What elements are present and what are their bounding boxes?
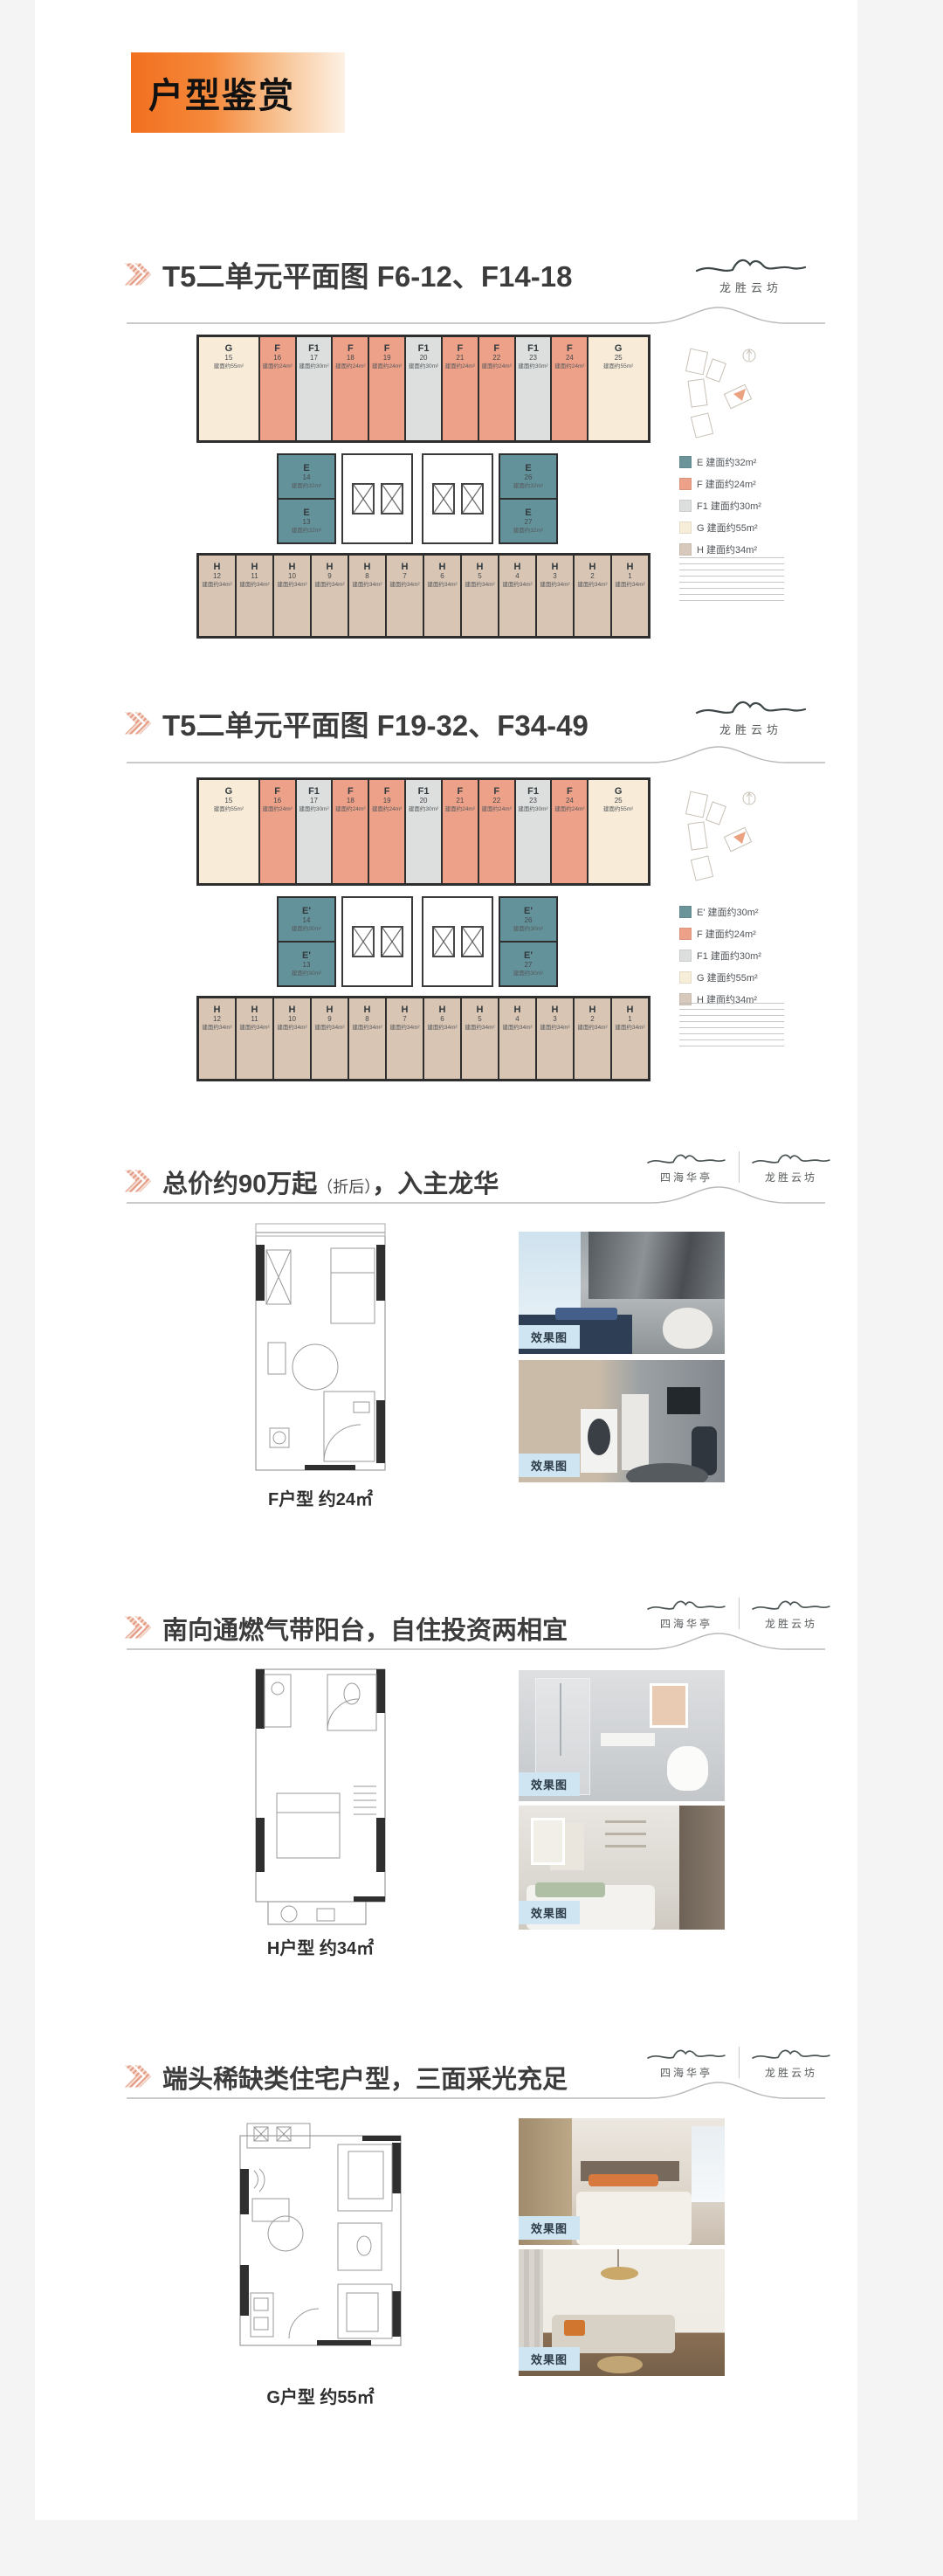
unit-cell: H 12 建面约34m² bbox=[199, 556, 235, 636]
unit-type: E' bbox=[524, 906, 533, 916]
brand-logo-label: 龙胜云坊 bbox=[719, 721, 782, 737]
unit-type: F1 bbox=[418, 343, 430, 354]
legend-color-swatch bbox=[679, 971, 692, 984]
unit-area: 建面约30m² bbox=[513, 970, 543, 977]
unit-cell: F 19 建面约24m² bbox=[369, 780, 404, 883]
unit-number: 20 bbox=[420, 354, 428, 363]
unit-area: 建面约32m² bbox=[513, 482, 543, 490]
disclaimer-text bbox=[679, 1003, 784, 1050]
legend-color-swatch bbox=[679, 543, 692, 556]
pillows-green bbox=[535, 1882, 605, 1897]
unit-cell: H 4 建面约34m² bbox=[499, 556, 535, 636]
unit-type: F1 bbox=[308, 786, 320, 797]
unit-cell: H 1 建面约34m² bbox=[612, 998, 648, 1079]
unit-number: 16 bbox=[273, 354, 281, 363]
unit-type: F bbox=[567, 343, 573, 354]
unit-cell: F 21 建面约24m² bbox=[443, 337, 478, 440]
unit-area: 建面约24m² bbox=[554, 363, 584, 370]
legend-label: F1 建面约30m² bbox=[697, 499, 761, 513]
unit-cell: H 10 建面约34m² bbox=[274, 556, 310, 636]
unit-type: E' bbox=[302, 906, 311, 916]
unit-area: 建面约30m² bbox=[299, 363, 328, 370]
unit-area: 建面约34m² bbox=[202, 581, 231, 589]
unit-cell: H 11 建面约34m² bbox=[237, 556, 272, 636]
unit-number: 20 bbox=[420, 797, 428, 805]
unit-area: 建面约34m² bbox=[540, 1024, 569, 1032]
mountain-wave-icon bbox=[646, 1150, 726, 1167]
legend-row: G 建面约55m² bbox=[679, 521, 810, 535]
legend-color-swatch bbox=[679, 928, 692, 940]
unit-cell: F 21 建面约24m² bbox=[443, 780, 478, 883]
unit-area: 建面约30m² bbox=[292, 970, 321, 977]
washer-door bbox=[588, 1419, 610, 1455]
unit-number: 24 bbox=[566, 797, 574, 805]
unit-type: F1 bbox=[418, 786, 430, 797]
unit-type: F bbox=[493, 343, 499, 354]
unit-cell: F 18 建面约24m² bbox=[333, 337, 368, 440]
floorplan2-core-row: E' 14 建面约30m² E' 13 建面约30m² E bbox=[196, 896, 650, 987]
unit-cell: H 8 建面约34m² bbox=[349, 998, 385, 1079]
unit-number: 19 bbox=[383, 354, 391, 363]
dual-brand-logos: 四海华亭 龙胜云坊 bbox=[646, 2045, 831, 2080]
unit-number: 23 bbox=[529, 797, 537, 805]
vanity-counter bbox=[601, 1733, 654, 1746]
h-unit-floorplan-drawing bbox=[251, 1664, 390, 1929]
legend-label: F 建面约24m² bbox=[697, 477, 756, 491]
unit-cell: F 16 建面约24m² bbox=[260, 780, 295, 883]
brand-logo-label: 龙胜云坊 bbox=[765, 1170, 817, 1184]
unit-type: E bbox=[303, 463, 309, 473]
unit-type: H bbox=[552, 1005, 559, 1015]
unit-type: G bbox=[225, 786, 233, 797]
orange-pillows bbox=[589, 2174, 658, 2187]
brand-logo-label: 龙胜云坊 bbox=[765, 2065, 817, 2080]
bed-duvet bbox=[576, 2192, 692, 2245]
section-divider bbox=[127, 304, 825, 327]
unit-type: H bbox=[627, 1005, 634, 1015]
floorplan1-core-row: E 14 建面约32m² E 13 建面约32m² E bbox=[196, 453, 650, 544]
unit-type: F bbox=[348, 343, 354, 354]
floorplan1-legend: E 建面约32m² F 建面约24m² F1 建面约30m² G 建面约55m²… bbox=[679, 455, 810, 556]
unit-cell: E' 13 建面约30m² bbox=[279, 943, 334, 985]
unit-cell: E' 26 建面约30m² bbox=[500, 898, 556, 941]
legend-color-swatch bbox=[679, 500, 692, 512]
unit-number: 23 bbox=[529, 354, 537, 363]
curtain bbox=[519, 2249, 543, 2348]
unit-area: 建面约30m² bbox=[518, 805, 547, 813]
unit-area: 建面约32m² bbox=[292, 482, 321, 490]
unit-number: 3 bbox=[553, 572, 556, 581]
coffee-table bbox=[597, 2356, 643, 2373]
logo-separator bbox=[739, 1598, 740, 1629]
unit-type: F bbox=[493, 786, 499, 797]
unit-type: F bbox=[384, 343, 390, 354]
brand-logo: 龙胜云坊 bbox=[677, 695, 825, 737]
unit-type: H bbox=[402, 1005, 409, 1015]
unit-type: H bbox=[364, 1005, 371, 1015]
unit-number: 21 bbox=[456, 797, 464, 805]
unit-area: 建面约34m² bbox=[389, 581, 419, 589]
unit-cell: H 6 建面约34m² bbox=[424, 556, 460, 636]
unit-area: 建面约24m² bbox=[372, 805, 402, 813]
brand-logo-label: 龙胜云坊 bbox=[765, 1616, 817, 1631]
unit-cell: H 5 建面约34m² bbox=[462, 998, 498, 1079]
section-divider bbox=[127, 2079, 825, 2102]
unit-type: F bbox=[567, 786, 573, 797]
section-chevron-icon bbox=[124, 262, 152, 287]
unit-cell: E 27 建面约32m² bbox=[500, 500, 556, 542]
section2-title: T5二单元平面图 F19-32、F34-49 bbox=[162, 702, 589, 744]
unit-number: 5 bbox=[478, 572, 481, 581]
brand-logo: 四海华亭 bbox=[646, 1150, 726, 1184]
f-unit-caption: F户型 约24㎡ bbox=[251, 1485, 390, 1510]
legend-color-swatch bbox=[679, 521, 692, 534]
unit-type: H bbox=[477, 1005, 484, 1015]
unit-number: 11 bbox=[251, 572, 258, 581]
unit-number: 7 bbox=[403, 572, 406, 581]
unit-number: 2 bbox=[590, 1015, 594, 1024]
legend-row: H 建面约34m² bbox=[679, 542, 810, 556]
unit-cell: H 6 建面约34m² bbox=[424, 998, 460, 1079]
unit-cell: H 10 建面约34m² bbox=[274, 998, 310, 1079]
unit-cell: G 15 建面约55m² bbox=[199, 337, 258, 440]
lamp-shade bbox=[601, 2267, 637, 2280]
unit-number: 19 bbox=[383, 797, 391, 805]
unit-type: H bbox=[251, 1005, 258, 1015]
unit-cell: H 9 建面约34m² bbox=[312, 998, 348, 1079]
unit-area: 建面约24m² bbox=[335, 805, 365, 813]
mountain-wave-icon bbox=[751, 1596, 831, 1613]
brand-logo: 四海华亭 bbox=[646, 2045, 726, 2080]
unit-number: 9 bbox=[327, 572, 331, 581]
unit-number: 2 bbox=[590, 572, 594, 581]
unit-type: G bbox=[615, 786, 623, 797]
unit-area: 建面约30m² bbox=[299, 805, 328, 813]
unit-area: 建面约34m² bbox=[202, 1024, 231, 1032]
unit-cell: F1 20 建面约30m² bbox=[406, 337, 441, 440]
logo-separator bbox=[739, 2047, 740, 2078]
unit-cell: H 5 建面约34m² bbox=[462, 556, 498, 636]
unit-number: 9 bbox=[327, 1015, 331, 1024]
unit-area: 建面约34m² bbox=[277, 1024, 306, 1032]
unit-area: 建面约32m² bbox=[513, 527, 543, 535]
unit-cell: H 11 建面约34m² bbox=[237, 998, 272, 1079]
unit-number: 10 bbox=[288, 572, 296, 581]
unit-type: F1 bbox=[527, 786, 539, 797]
legend-row: E 建面约32m² bbox=[679, 455, 810, 469]
photo-rendering-bathroom: 效果图 bbox=[519, 1670, 725, 1801]
site-plan-diagram bbox=[681, 343, 761, 441]
unit-cell: H 1 建面约34m² bbox=[612, 556, 648, 636]
disclaimer-text bbox=[679, 557, 784, 604]
unit-area: 建面约34m² bbox=[314, 1024, 344, 1032]
unit-number: 3 bbox=[553, 1015, 556, 1024]
brand-logo-label: 四海华亭 bbox=[660, 1616, 712, 1631]
unit-area: 建面约34m² bbox=[239, 1024, 269, 1032]
section-divider bbox=[127, 743, 825, 766]
unit-area: 建面约34m² bbox=[615, 1024, 644, 1032]
unit-cell: E' 27 建面约30m² bbox=[500, 943, 556, 985]
photo-rendering-bedroom-green: 效果图 bbox=[519, 1806, 725, 1930]
section-chevron-icon bbox=[124, 711, 152, 736]
art-frames bbox=[531, 1818, 565, 1865]
unit-type: E' bbox=[524, 950, 533, 961]
unit-number: 4 bbox=[515, 1015, 519, 1024]
legend-color-swatch bbox=[679, 478, 692, 490]
unit-cell: F 24 建面约24m² bbox=[552, 780, 587, 883]
unit-area: 建面约34m² bbox=[352, 1024, 382, 1032]
unit-cell: G 25 建面约55m² bbox=[589, 337, 648, 440]
unit-area: 建面约30m² bbox=[292, 925, 321, 933]
legend-row: F 建面约24m² bbox=[679, 927, 810, 941]
render-label-badge: 效果图 bbox=[519, 1772, 580, 1796]
unit-number: 26 bbox=[525, 916, 533, 925]
unit-area: 建面约55m² bbox=[214, 805, 244, 813]
brand-logo: 龙胜云坊 bbox=[751, 1596, 831, 1631]
legend-color-swatch bbox=[679, 950, 692, 962]
unit-type: H bbox=[477, 562, 484, 572]
unit-type: H bbox=[589, 1005, 596, 1015]
render-label-badge: 效果图 bbox=[519, 1901, 580, 1924]
logo-separator bbox=[739, 1151, 740, 1183]
unit-number: 16 bbox=[273, 797, 281, 805]
unit-type: F bbox=[348, 786, 354, 797]
unit-cell: E' 14 建面约30m² bbox=[279, 898, 334, 941]
mountain-wave-icon bbox=[646, 1596, 726, 1613]
wardrobe bbox=[679, 1806, 725, 1930]
unit-type: H bbox=[627, 562, 634, 572]
legend-label: H 建面约34m² bbox=[697, 542, 757, 556]
legend-row: G 建面约55m² bbox=[679, 970, 810, 984]
unit-area: 建面约55m² bbox=[214, 363, 244, 370]
unit-cell: G 25 建面约55m² bbox=[589, 780, 648, 883]
unit-cell: F1 20 建面约30m² bbox=[406, 780, 441, 883]
unit-area: 建面约55m² bbox=[603, 363, 633, 370]
unit-type: H bbox=[439, 1005, 446, 1015]
unit-number: 10 bbox=[288, 1015, 296, 1024]
section-divider bbox=[127, 1630, 825, 1653]
render-label-badge: 效果图 bbox=[519, 1454, 580, 1477]
unit-cell: H 3 建面约34m² bbox=[537, 998, 573, 1079]
unit-area: 建面约30m² bbox=[409, 805, 438, 813]
brand-logo-label: 四海华亭 bbox=[660, 2065, 712, 2080]
unit-number: 14 bbox=[303, 473, 311, 482]
unit-number: 14 bbox=[303, 916, 311, 925]
unit-number: 4 bbox=[515, 572, 519, 581]
e-unit-stack: E' 14 建面约30m² E' 13 建面约30m² bbox=[277, 896, 336, 987]
unit-cell: H 4 建面约34m² bbox=[499, 998, 535, 1079]
unit-area: 建面约24m² bbox=[482, 363, 512, 370]
unit-cell: E 26 建面约32m² bbox=[500, 455, 556, 498]
unit-type: H bbox=[514, 562, 521, 572]
floorplan-unit-diagram-1: G 15 建面约55m² F 16 建面约24m² F1 17 建面约30m² bbox=[196, 335, 650, 639]
dual-brand-logos: 四海华亭 龙胜云坊 bbox=[646, 1150, 831, 1184]
unit-number: 26 bbox=[525, 473, 533, 482]
unit-cell: F 18 建面约24m² bbox=[333, 780, 368, 883]
unit-cell: F1 17 建面约30m² bbox=[297, 337, 332, 440]
desk-monitor bbox=[667, 1387, 700, 1414]
floorplan2-bottom-row: H 12 建面约34m² H 11 建面约34m² H 10 建面约34m² bbox=[196, 996, 650, 1081]
mural-wall bbox=[589, 1232, 725, 1299]
orange-cushion bbox=[564, 2320, 585, 2335]
unit-number: 17 bbox=[310, 797, 318, 805]
unit-number: 8 bbox=[365, 1015, 368, 1024]
unit-cell: F 19 建面约24m² bbox=[369, 337, 404, 440]
mountain-wave-icon bbox=[694, 253, 808, 276]
unit-number: 27 bbox=[525, 518, 533, 527]
mountain-wave-icon bbox=[751, 1150, 831, 1167]
unit-number: 22 bbox=[492, 354, 500, 363]
unit-number: 21 bbox=[456, 354, 464, 363]
e-unit-stack: E 26 建面约32m² E 27 建面约32m² bbox=[499, 453, 558, 544]
unit-cell: H 2 建面约34m² bbox=[575, 998, 610, 1079]
legend-label: G 建面约55m² bbox=[697, 970, 758, 984]
page-card: 户型鉴赏 T5二单元平面图 F6-12、F14-18 龙胜云坊 G 15 建面约… bbox=[35, 0, 857, 2520]
legend-label: G 建面约55m² bbox=[697, 521, 758, 535]
unit-area: 建面约32m² bbox=[292, 527, 321, 535]
unit-number: 11 bbox=[251, 1015, 258, 1024]
unit-area: 建面约34m² bbox=[352, 581, 382, 589]
unit-type: H bbox=[327, 1005, 334, 1015]
unit-area: 建面约34m² bbox=[314, 581, 344, 589]
page-header-badge: 户型鉴赏 bbox=[131, 52, 345, 133]
unit-number: 25 bbox=[615, 797, 623, 805]
brand-logo-label: 四海华亭 bbox=[660, 1170, 712, 1184]
brand-logo: 四海华亭 bbox=[646, 1596, 726, 1631]
unit-area: 建面约34m² bbox=[577, 581, 607, 589]
elevator-core bbox=[422, 453, 493, 544]
legend-row: F1 建面约30m² bbox=[679, 949, 810, 963]
unit-cell: E 14 建面约32m² bbox=[279, 455, 334, 498]
unit-area: 建面约55m² bbox=[603, 805, 633, 813]
legend-color-swatch bbox=[679, 906, 692, 918]
unit-number: 8 bbox=[365, 572, 368, 581]
unit-area: 建面约24m² bbox=[482, 805, 512, 813]
art-frame bbox=[650, 1683, 688, 1728]
g-unit-floorplan-drawing bbox=[233, 2118, 408, 2365]
unit-number: 12 bbox=[213, 572, 221, 581]
photo-rendering-laundry-study: 效果图 bbox=[519, 1360, 725, 1482]
unit-area: 建面约30m² bbox=[513, 925, 543, 933]
mountain-wave-icon bbox=[694, 695, 808, 718]
unit-type: H bbox=[214, 1005, 221, 1015]
photo-rendering-bedroom-orange: 效果图 bbox=[519, 2118, 725, 2245]
unit-cell: F1 17 建面约30m² bbox=[297, 780, 332, 883]
elevator-core bbox=[341, 896, 413, 987]
wall-shelves bbox=[605, 1820, 646, 1823]
unit-area: 建面约34m² bbox=[540, 581, 569, 589]
brand-logo: 龙胜云坊 bbox=[751, 1150, 831, 1184]
unit-area: 建面约34m² bbox=[615, 581, 644, 589]
brand-logo: 龙胜云坊 bbox=[677, 253, 825, 295]
unit-area: 建面约24m² bbox=[262, 363, 292, 370]
unit-cell: F 24 建面约24m² bbox=[552, 337, 587, 440]
section1-title: T5二单元平面图 F6-12、F14-18 bbox=[162, 253, 572, 295]
legend-row: F 建面约24m² bbox=[679, 477, 810, 491]
e-unit-stack: E 14 建面约32m² E 13 建面约32m² bbox=[277, 453, 336, 544]
brand-logo: 龙胜云坊 bbox=[751, 2045, 831, 2080]
photo-rendering-living-room: 效果图 bbox=[519, 2249, 725, 2376]
unit-number: 22 bbox=[492, 797, 500, 805]
unit-cell: H 7 建面约34m² bbox=[387, 998, 423, 1079]
unit-type: H bbox=[439, 562, 446, 572]
legend-label: E' 建面约30m² bbox=[697, 905, 759, 919]
unit-type: G bbox=[225, 343, 233, 354]
unit-number: 15 bbox=[224, 797, 232, 805]
unit-number: 6 bbox=[440, 1015, 444, 1024]
floorplan2-top-row: G 15 建面约55m² F 16 建面约24m² F1 17 建面约30m² bbox=[196, 777, 650, 886]
legend-label: F1 建面约30m² bbox=[697, 949, 761, 963]
toilet bbox=[667, 1746, 708, 1791]
unit-cell: F 16 建面约24m² bbox=[260, 337, 295, 440]
unit-area: 建面约34m² bbox=[239, 581, 269, 589]
shower-rail bbox=[560, 1683, 561, 1756]
unit-cell: H 12 建面约34m² bbox=[199, 998, 235, 1079]
render-label-badge: 效果图 bbox=[519, 1325, 580, 1349]
unit-number: 5 bbox=[478, 1015, 481, 1024]
elevator-core bbox=[341, 453, 413, 544]
unit-type: F1 bbox=[527, 343, 539, 354]
unit-number: 13 bbox=[303, 961, 311, 970]
unit-type: H bbox=[289, 562, 296, 572]
unit-number: 24 bbox=[566, 354, 574, 363]
unit-cell: H 7 建面约34m² bbox=[387, 556, 423, 636]
unit-cell: F 22 建面约24m² bbox=[479, 780, 514, 883]
e-unit-stack: E' 26 建面约30m² E' 27 建面约30m² bbox=[499, 896, 558, 987]
legend-row: F1 建面约30m² bbox=[679, 499, 810, 513]
unit-type: H bbox=[364, 562, 371, 572]
unit-type: H bbox=[589, 562, 596, 572]
section-divider bbox=[127, 1184, 825, 1206]
page-title: 户型鉴赏 bbox=[131, 67, 295, 118]
fridge bbox=[622, 1394, 649, 1470]
unit-type: F1 bbox=[308, 343, 320, 354]
unit-area: 建面约34m² bbox=[427, 581, 457, 589]
unit-cell: H 3 建面约34m² bbox=[537, 556, 573, 636]
unit-number: 12 bbox=[213, 1015, 221, 1024]
unit-area: 建面约34m² bbox=[465, 581, 494, 589]
unit-cell: G 15 建面约55m² bbox=[199, 780, 258, 883]
unit-type: H bbox=[514, 1005, 521, 1015]
unit-number: 7 bbox=[403, 1015, 406, 1024]
unit-cell: F1 23 建面约30m² bbox=[516, 337, 551, 440]
unit-number: 18 bbox=[347, 354, 354, 363]
legend-color-swatch bbox=[679, 456, 692, 468]
unit-number: 27 bbox=[525, 961, 533, 970]
unit-type: E bbox=[525, 463, 531, 473]
unit-type: H bbox=[214, 562, 221, 572]
unit-type: F bbox=[384, 786, 390, 797]
unit-type: F bbox=[274, 786, 280, 797]
mountain-wave-icon bbox=[751, 2045, 831, 2062]
unit-type: E bbox=[525, 508, 531, 518]
unit-area: 建面约30m² bbox=[518, 363, 547, 370]
unit-area: 建面约34m² bbox=[277, 581, 306, 589]
dual-brand-logos: 四海华亭 龙胜云坊 bbox=[646, 1596, 831, 1631]
h-unit-caption: H户型 约34㎡ bbox=[251, 1934, 390, 1959]
unit-type: H bbox=[552, 562, 559, 572]
beanbag-chair bbox=[663, 1308, 712, 1350]
unit-area: 建面约24m² bbox=[445, 805, 475, 813]
unit-area: 建面约34m² bbox=[465, 1024, 494, 1032]
unit-area: 建面约24m² bbox=[445, 363, 475, 370]
brand-logo-label: 龙胜云坊 bbox=[719, 279, 782, 295]
unit-area: 建面约24m² bbox=[335, 363, 365, 370]
window bbox=[692, 2126, 725, 2202]
render-label-badge: 效果图 bbox=[519, 2347, 580, 2371]
elevator-core bbox=[422, 896, 493, 987]
mountain-wave-icon bbox=[646, 2045, 726, 2062]
